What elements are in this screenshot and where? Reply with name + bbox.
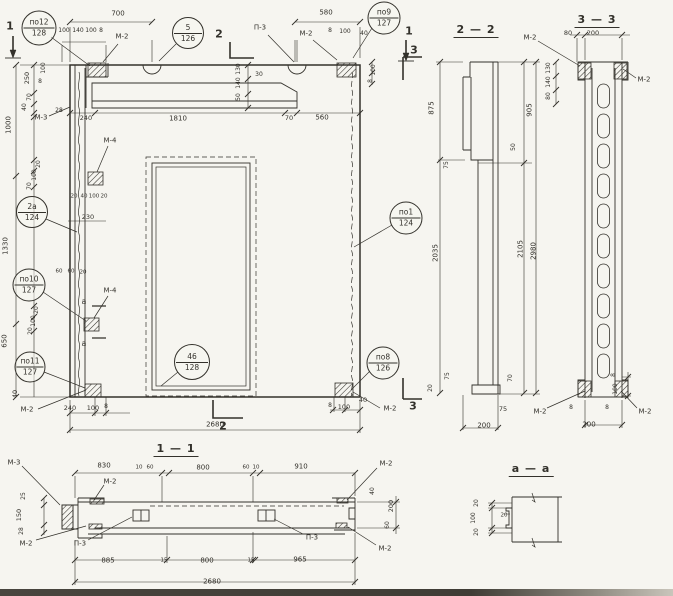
dim-label: 250 — [24, 72, 31, 84]
dim-label: 100 — [339, 29, 350, 35]
callout-5: 5126 — [172, 17, 204, 49]
scan-artifact — [0, 589, 673, 596]
dim-label: 885 — [101, 558, 114, 565]
part-label: П-3 — [254, 25, 266, 32]
dim-label: а — [82, 298, 87, 306]
dim-label: 140 — [236, 77, 242, 88]
dimension-lines — [16, 22, 631, 585]
dim-label: 100 — [58, 28, 69, 34]
part-label: М-2 — [103, 479, 116, 486]
dim-label: 100 — [471, 512, 477, 523]
dim-label: 150 — [16, 509, 23, 521]
dim-label: 20 — [474, 499, 480, 507]
dim-label: 910 — [294, 464, 307, 471]
dim-label: 50 — [511, 143, 517, 151]
dim-label: 830 — [97, 463, 110, 470]
dim-label: 70 — [508, 374, 514, 382]
part-label: М-2 — [638, 409, 651, 416]
dim-label: 800 — [200, 558, 213, 565]
callout-mark: по12 — [24, 19, 54, 29]
dim-label: 875 — [429, 101, 436, 114]
cut-marker-3: 3 — [409, 401, 417, 412]
dim-label: 100 — [87, 405, 99, 412]
dim-label: 80 — [564, 30, 572, 37]
dim-label: 25 — [21, 492, 27, 500]
callout-sheet: 126 — [369, 364, 398, 373]
part-label: М-2 — [20, 407, 33, 414]
dimension-ticks — [13, 19, 631, 585]
dim-label: 230 — [82, 214, 94, 221]
dim-label: 140 — [546, 76, 552, 87]
callout-46: 46128 — [174, 344, 210, 380]
dim-label: 75 — [444, 161, 450, 169]
dim-label: 20 — [474, 528, 480, 536]
section-title: 1 — 1 — [154, 443, 199, 457]
dim-label: 100 — [89, 194, 100, 200]
callout-2а: 2а124 — [16, 196, 48, 228]
part-label: М-2 — [115, 34, 128, 41]
callout-sheet: 124 — [18, 213, 46, 222]
dim-label: 240 — [80, 115, 92, 122]
dim-label: 200 — [587, 30, 599, 37]
dim-label: 100 — [338, 404, 350, 411]
part-label: М-3 — [7, 460, 20, 467]
section-title: 3 — 3 — [575, 14, 620, 28]
cut-marker-2: 2 — [219, 421, 227, 432]
part-label: П-3 — [306, 535, 318, 542]
callout-mark: по9 — [370, 9, 399, 19]
drawing-linework — [0, 0, 673, 596]
callout-mark: 5 — [174, 24, 202, 34]
dim-label: 8 — [611, 373, 617, 377]
dim-label: 70 — [27, 93, 33, 101]
dim-label: 20 — [34, 306, 40, 314]
callout-mark: 2а — [18, 203, 46, 213]
dim-label: 1000 — [6, 116, 13, 134]
dim-label: 200 — [477, 423, 490, 430]
dim-label: 240 — [64, 405, 76, 412]
dim-label: 1810 — [169, 116, 187, 123]
dim-label: 50 — [236, 93, 242, 101]
part-label: М-4 — [103, 138, 116, 145]
dim-label: 700 — [111, 11, 124, 18]
part-label: М-2 — [378, 546, 391, 553]
callout-по12: по12128 — [22, 11, 57, 46]
hatch-areas — [62, 63, 628, 529]
part-label: М-3 — [34, 115, 47, 122]
dim-label: 8 — [605, 405, 609, 411]
dim-label: 20 — [101, 194, 108, 200]
part-label: М-2 — [379, 461, 392, 468]
part-label: М-4 — [103, 288, 116, 295]
dim-label: 560 — [315, 115, 328, 122]
dim-label: 10 — [136, 465, 143, 471]
dim-label: 20 — [28, 327, 34, 335]
dim-label: 965 — [293, 557, 306, 564]
part-label: М-2 — [523, 35, 536, 42]
dim-label: 130 — [546, 62, 552, 73]
dim-label: 40 — [360, 31, 368, 37]
section-title: 2 — 2 — [454, 24, 499, 38]
dim-label: 8 — [569, 405, 573, 411]
dim-label: 8 — [38, 79, 42, 85]
callout-sheet: 128 — [176, 363, 207, 372]
drawing-canvas: 7001001401008М-2П-3М-2580810040100813014… — [0, 0, 673, 596]
dim-label: 80 — [546, 92, 552, 100]
part-label: М-2 — [533, 409, 546, 416]
dim-label: 60 — [56, 269, 63, 275]
dim-label: 20 — [36, 160, 42, 168]
section-1-1-lines — [62, 498, 355, 538]
callout-sheet: 127 — [17, 368, 44, 377]
dim-label: 8 — [368, 79, 374, 83]
cut-marker-1: 1 — [405, 26, 413, 37]
dim-label: 200 — [388, 500, 395, 512]
callout-mark: по11 — [17, 358, 44, 368]
dim-label: 40 — [12, 390, 19, 398]
dim-label: 100 — [41, 62, 47, 73]
callout-sheet: 124 — [392, 219, 421, 228]
callout-mark: по10 — [15, 276, 44, 286]
dim-label: 580 — [319, 10, 332, 17]
dim-label: 40 — [81, 194, 88, 200]
callout-sheet: 126 — [174, 34, 202, 43]
dim-label: а — [82, 340, 87, 348]
dim-label: 75 — [445, 372, 451, 380]
dim-label: 15 — [161, 558, 168, 564]
dim-label: 8 — [104, 404, 108, 410]
dim-label: 100 — [32, 169, 38, 180]
section-title: а — а — [509, 463, 554, 477]
dim-label: 28 — [19, 527, 25, 535]
dim-label: 140 — [72, 28, 83, 34]
dim-label: 8 — [99, 28, 103, 34]
dim-label: 8 — [328, 28, 332, 34]
dim-label: 2035 — [433, 244, 440, 262]
dim-label: 20 — [80, 270, 87, 276]
dim-label: 28 — [55, 108, 63, 114]
callout-по8: по8126 — [367, 347, 400, 380]
callout-mark: 46 — [176, 353, 207, 363]
dim-label: 60 — [68, 269, 75, 275]
cut-marker-2: 2 — [215, 29, 223, 40]
callout-mark: по1 — [392, 209, 421, 219]
callout-sheet: 127 — [370, 19, 399, 28]
part-label: П-3 — [74, 541, 86, 548]
dim-label: 100 — [371, 64, 377, 75]
dim-label: 2680 — [203, 579, 221, 586]
dim-label: 100 — [613, 383, 619, 394]
section-a-a-lines — [506, 493, 562, 547]
dim-label: 30 — [255, 72, 263, 78]
part-label: М-2 — [299, 31, 312, 38]
dim-label: 40 — [370, 487, 376, 495]
dim-label: 60 — [385, 521, 391, 529]
dim-label: 70 — [285, 115, 293, 122]
section-3-3-lines — [578, 62, 628, 398]
dim-label: 8 — [328, 403, 332, 409]
dim-label: 1330 — [3, 237, 10, 255]
callout-по11: по11127 — [15, 352, 46, 383]
dim-label: 60 — [243, 465, 250, 471]
dim-label: 100 — [31, 315, 37, 326]
callout-по1: по1124 — [390, 202, 423, 235]
dim-label: 650 — [2, 334, 9, 347]
callout-sheet: 128 — [24, 29, 54, 38]
dim-label: 2980 — [531, 242, 538, 260]
dim-label: 100 — [85, 28, 96, 34]
callout-по9: по9127 — [368, 2, 401, 35]
part-label: М-2 — [19, 541, 32, 548]
dim-label: 75 — [499, 406, 507, 413]
dim-label: 70 — [27, 182, 33, 190]
dim-label: 40 — [22, 103, 28, 111]
part-label: М-2 — [637, 77, 650, 84]
part-label: М-2 — [383, 406, 396, 413]
dim-label: 40 — [359, 397, 367, 404]
dim-label: 60 — [147, 465, 154, 471]
dim-label: 20 — [501, 513, 508, 519]
dim-label: 905 — [527, 103, 534, 116]
cut-marker-1: 1 — [6, 21, 14, 32]
dim-label: 130 — [236, 63, 242, 74]
dim-label: 800 — [196, 465, 209, 472]
dim-label: 20 — [428, 384, 434, 392]
callout-sheet: 127 — [15, 286, 44, 295]
dim-label: 15 — [248, 558, 255, 564]
dim-label: 2105 — [518, 240, 525, 258]
dim-label: 200 — [582, 422, 595, 429]
callout-mark: по8 — [369, 354, 398, 364]
dim-label: 20 — [71, 194, 78, 200]
dim-label: 10 — [253, 465, 260, 471]
cut-marker-3: 3 — [410, 45, 418, 56]
callout-по10: по10127 — [13, 269, 46, 302]
section-2-2-lines — [463, 62, 500, 394]
